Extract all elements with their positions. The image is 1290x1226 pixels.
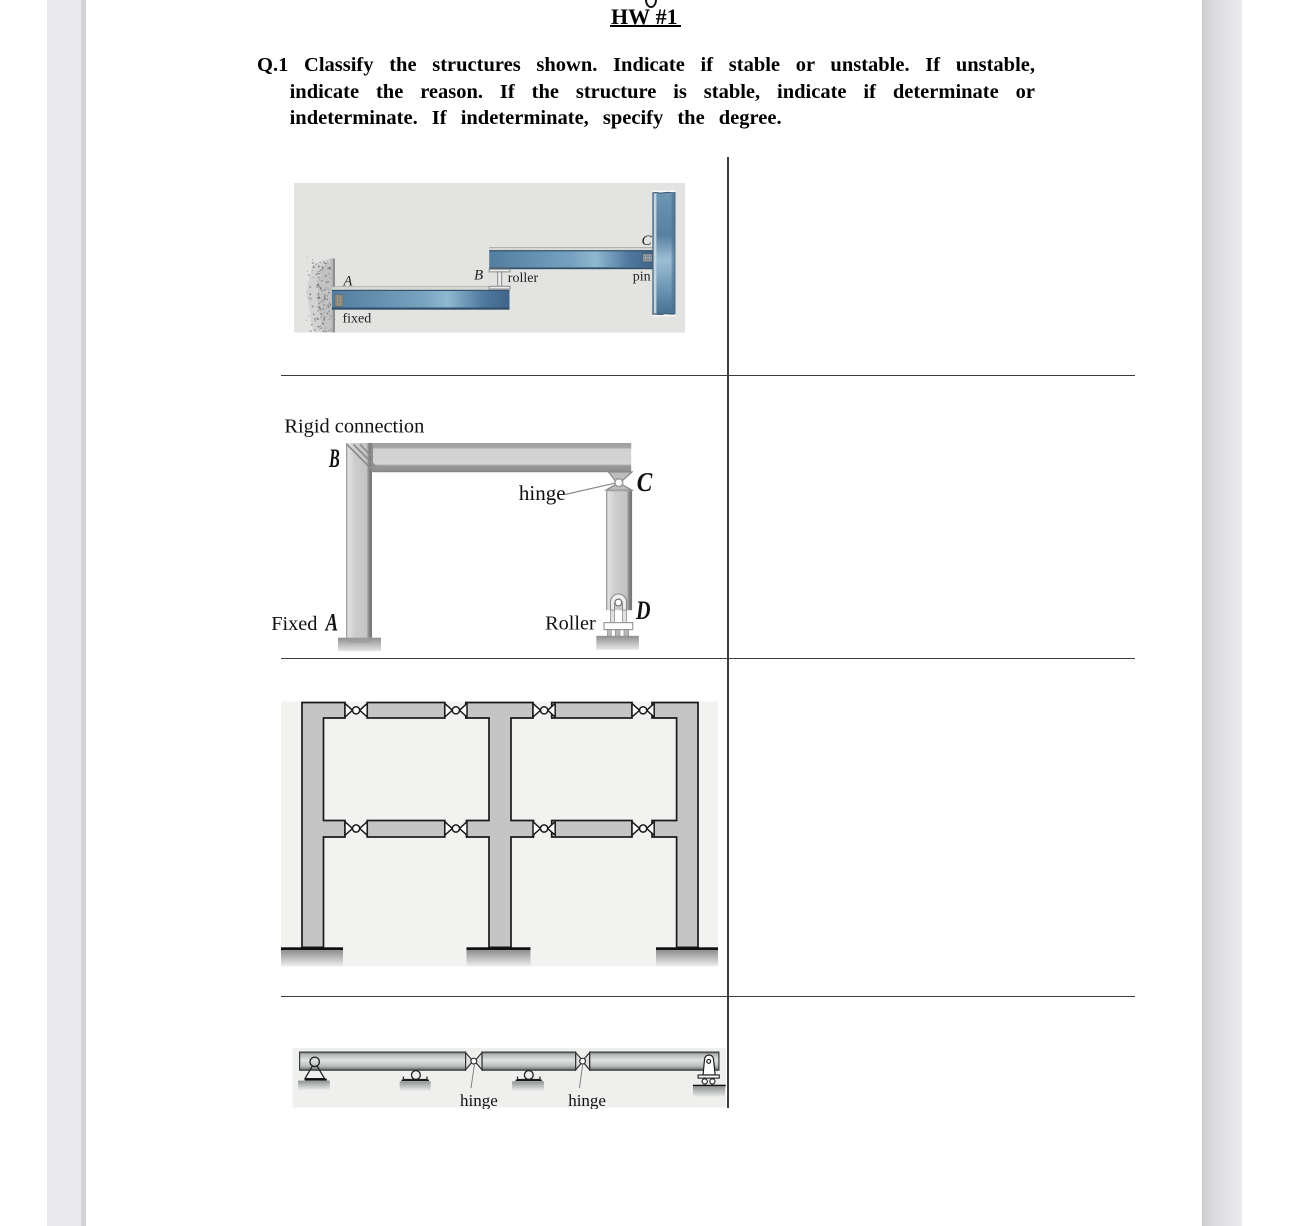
svg-text:A: A [324, 610, 338, 637]
svg-text:Fixed: Fixed [271, 613, 317, 635]
svg-text:C: C [641, 232, 652, 248]
svg-text:A: A [342, 273, 352, 289]
svg-text:C: C [637, 467, 653, 497]
svg-text:hinge: hinge [519, 481, 566, 505]
svg-text:D: D [635, 596, 650, 625]
svg-text:Roller: Roller [545, 612, 596, 634]
svg-text:fixed: fixed [342, 311, 371, 326]
svg-text:B: B [328, 444, 339, 473]
svg-text:hinge: hinge [568, 1091, 606, 1109]
svg-text:pin: pin [632, 269, 650, 284]
svg-text:hinge: hinge [460, 1091, 498, 1109]
svg-text:roller: roller [507, 271, 538, 286]
svg-text:Rigid connection: Rigid connection [284, 416, 424, 438]
svg-text:B: B [474, 267, 483, 283]
